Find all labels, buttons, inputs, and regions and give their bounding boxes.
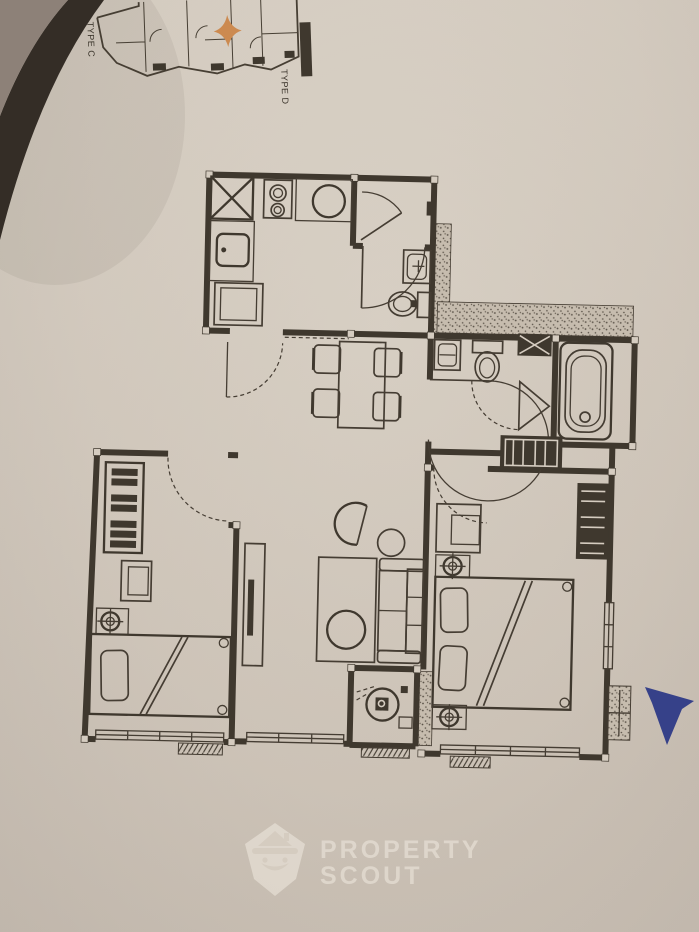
bedroom-left-door <box>167 458 230 521</box>
kitchen <box>208 177 353 339</box>
watermark: PROPERTY SCOUT <box>245 823 482 896</box>
compass-diamond-icon <box>213 15 242 48</box>
entry-foyer <box>361 192 433 242</box>
bathtub-room <box>559 343 613 440</box>
bed-single <box>89 634 231 717</box>
main-floor-plan <box>81 168 643 771</box>
wardrobe-master <box>576 483 610 560</box>
bedroom-master-door <box>433 468 488 523</box>
sofa <box>377 558 424 663</box>
utility-room <box>356 685 413 728</box>
dining-table <box>312 341 402 429</box>
bedroom-master <box>432 504 575 733</box>
watermark-line1: PROPERTY <box>320 836 482 864</box>
bathroom-top <box>361 246 432 318</box>
watermark-logo <box>245 823 305 896</box>
kitchen-door <box>226 342 282 398</box>
watermark-line2: SCOUT <box>320 862 423 890</box>
fan-symbol <box>435 553 470 580</box>
dining-chair <box>312 345 402 421</box>
bed-double <box>432 577 573 710</box>
floor-plan-photo: TYPE C TYPE D <box>0 0 699 932</box>
wardrobe-hall <box>500 435 563 470</box>
bedroom-left <box>89 560 232 717</box>
paper-corner <box>0 0 185 285</box>
armchair <box>326 495 382 550</box>
windows <box>95 591 613 758</box>
side-table <box>377 529 405 557</box>
wardrobe-bedroom-left <box>104 462 144 553</box>
bathroom-master <box>427 332 552 503</box>
blue-arrow-marker <box>645 687 694 745</box>
type-d-label: TYPE D <box>279 69 290 105</box>
coffee-table <box>316 557 376 662</box>
floor-plan-drawing: TYPE C TYPE D <box>0 0 699 932</box>
living-room <box>242 492 426 669</box>
tv-console <box>242 543 265 665</box>
fan-symbol <box>96 608 129 635</box>
